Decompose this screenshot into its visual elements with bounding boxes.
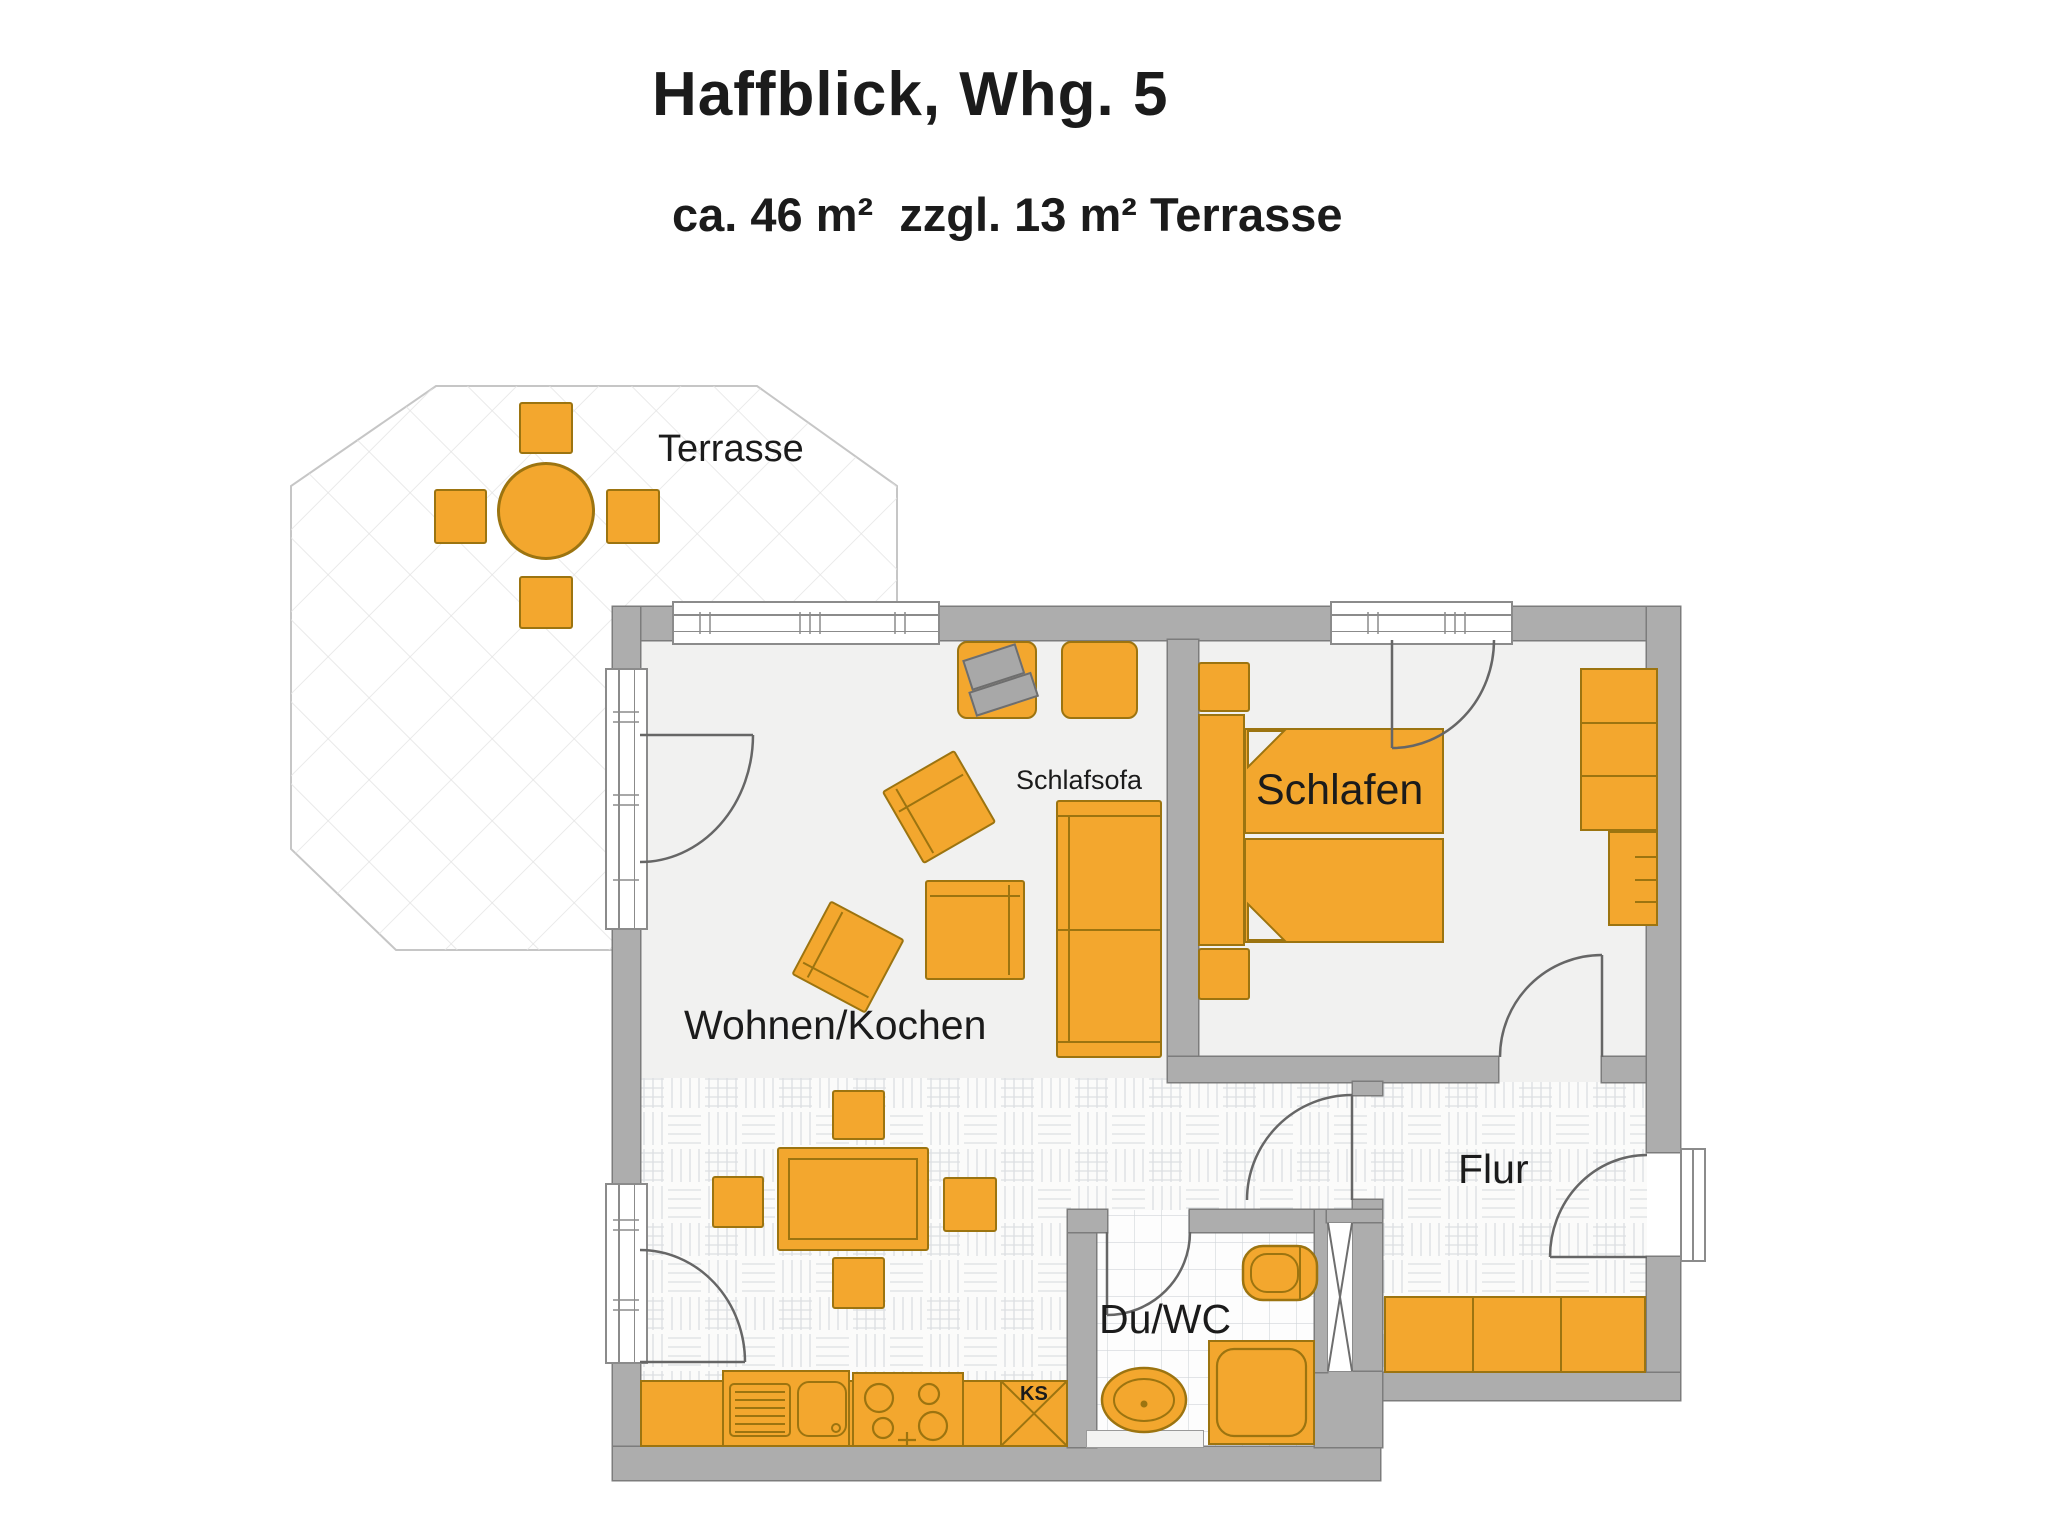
- nook-door-swing: [1247, 1095, 1352, 1200]
- label-sleeper-sofa: Schlafsofa: [1016, 766, 1142, 794]
- page-subtitle: ca. 46 m² zzgl. 13 m² Terrasse: [672, 190, 1343, 239]
- label-bathroom: Du/WC: [1099, 1298, 1231, 1341]
- toilet-icon: [1243, 1246, 1317, 1300]
- label-bedroom: Schlafen: [1256, 768, 1423, 813]
- page-title: Haffblick, Whg. 5: [652, 62, 1168, 127]
- bed-fold-icons: [1248, 731, 1284, 940]
- bedroom-window-swing: [1392, 640, 1494, 748]
- stove-icon: [865, 1384, 947, 1447]
- window-ticks: [613, 612, 1465, 1310]
- entrance-door-swing: [1550, 1155, 1647, 1257]
- label-terrace: Terrasse: [658, 430, 804, 470]
- washbasin-icon: [1102, 1368, 1186, 1432]
- shaft-x-icon: [1328, 1223, 1352, 1371]
- floorplan-canvas: Haffblick, Whg. 5 ca. 46 m² zzgl. 13 m² …: [0, 0, 2048, 1538]
- bedroom-door-swing: [1500, 955, 1602, 1057]
- label-hallway: Flur: [1458, 1148, 1529, 1191]
- label-living-kitchen: Wohnen/Kochen: [684, 1004, 986, 1047]
- dining-door-swing: [640, 1250, 745, 1362]
- label-fridge: KS: [1020, 1384, 1048, 1405]
- shower-tray-icon: [1217, 1349, 1306, 1436]
- sink-icon: [730, 1382, 846, 1436]
- terrace-door-swing: [640, 735, 753, 862]
